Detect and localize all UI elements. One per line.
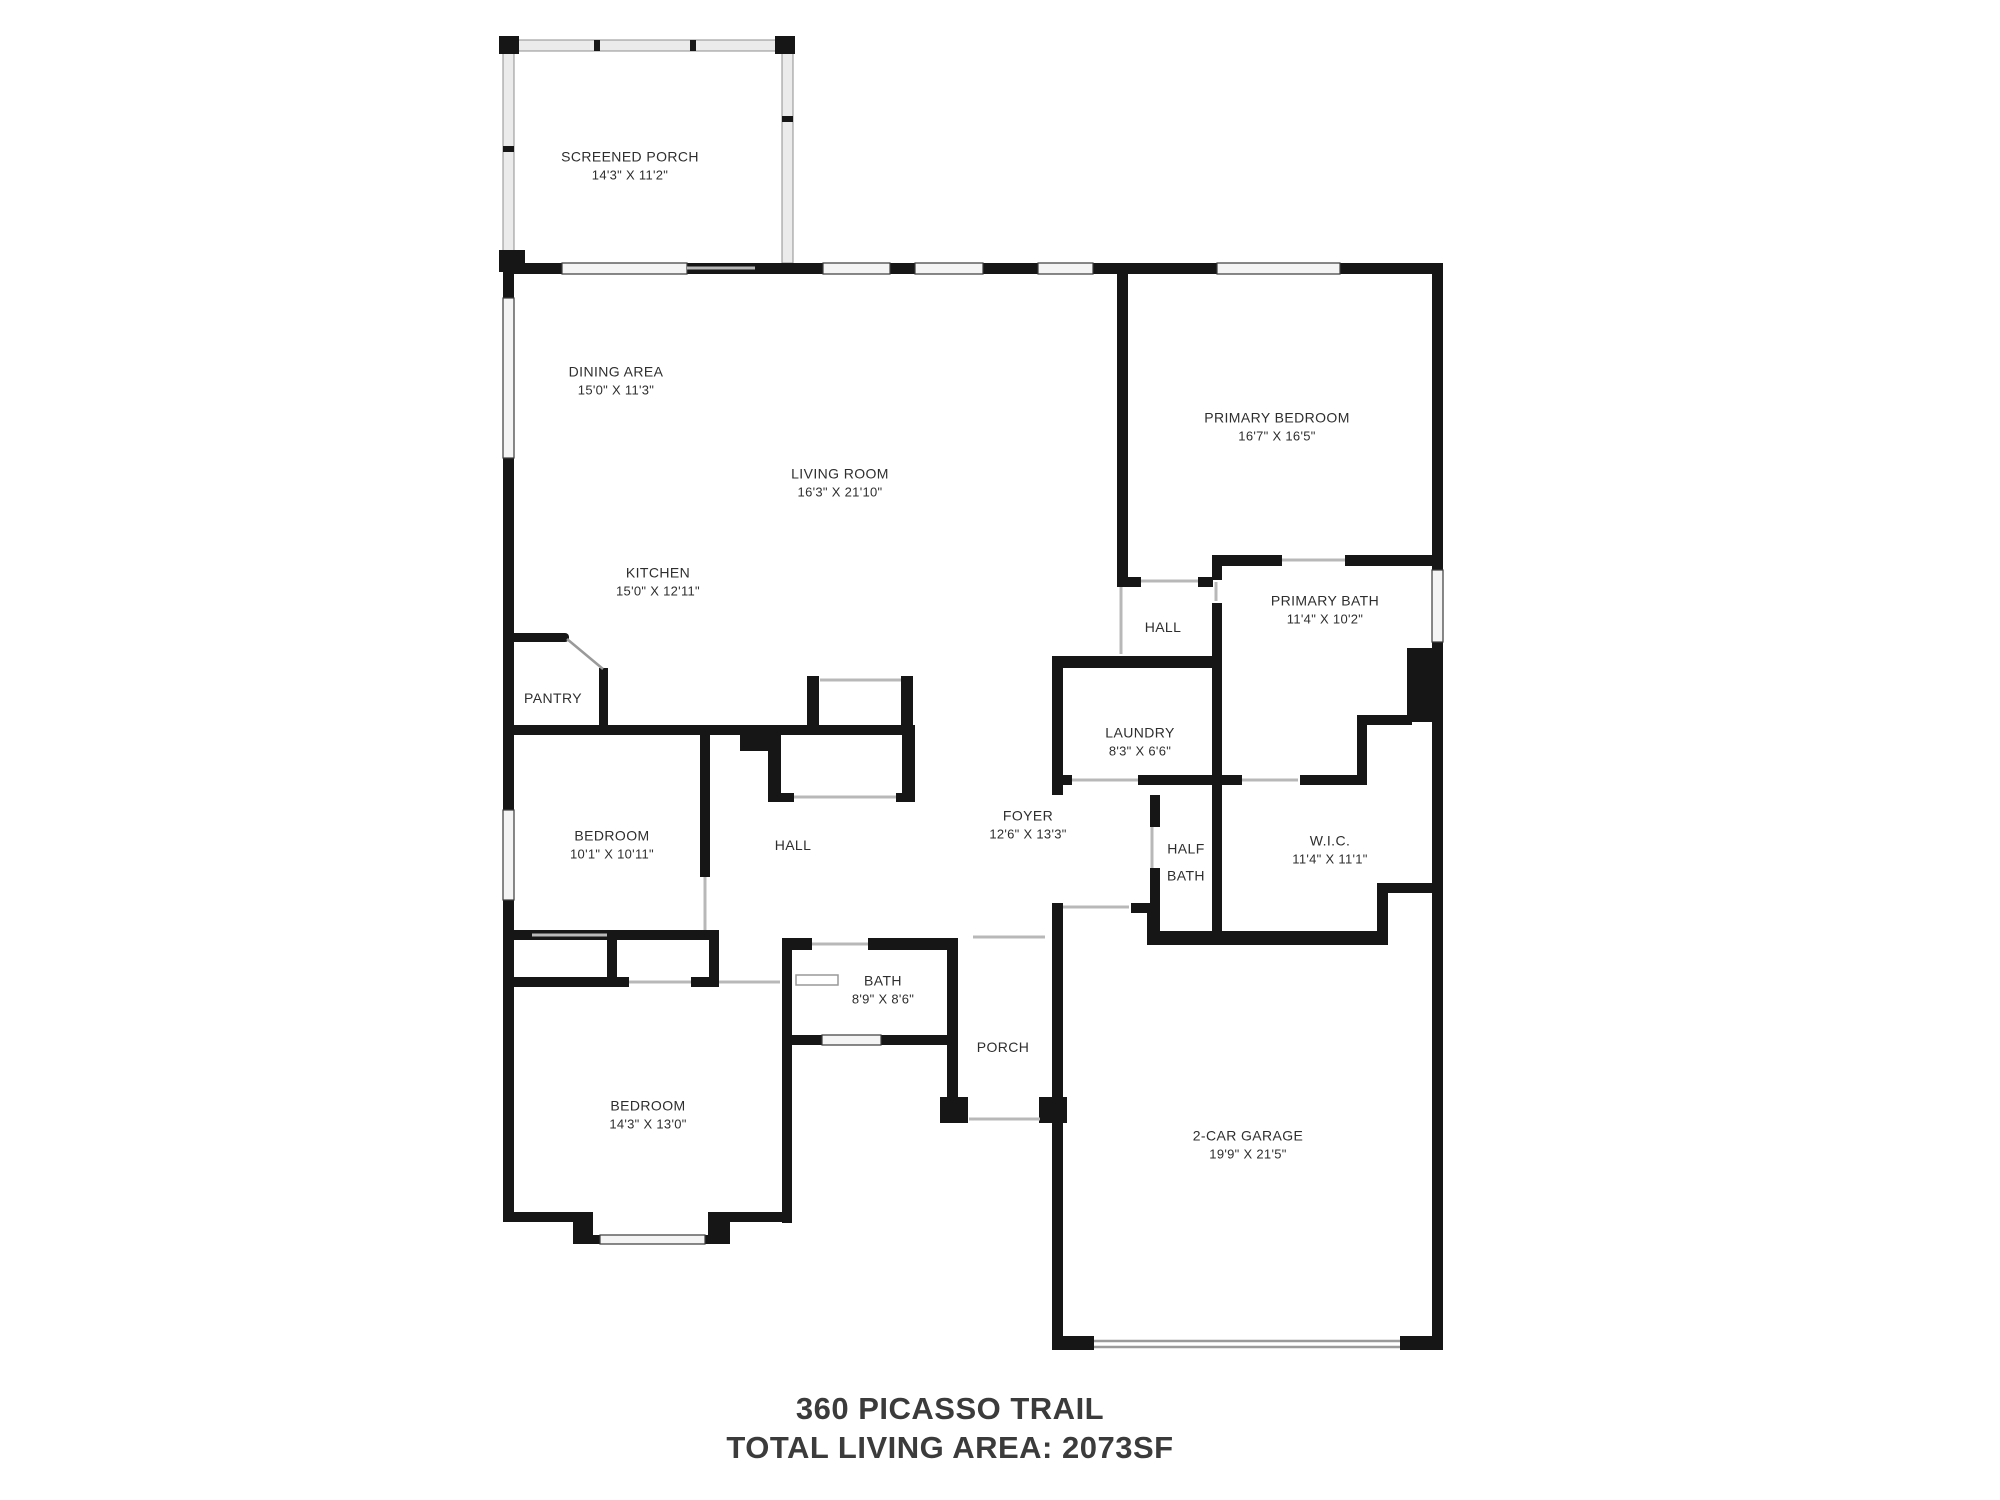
room-name: LAUNDRY bbox=[1105, 722, 1174, 742]
room-label-primary-bedroom: PRIMARY BEDROOM 16'7" X 16'5" bbox=[1204, 407, 1350, 446]
room-dims: 14'3" X 11'2" bbox=[561, 167, 699, 186]
floor-plan: SCREENED PORCH 14'3" X 11'2" DINING AREA… bbox=[0, 0, 2000, 1500]
room-dims: 19'9" X 21'5" bbox=[1193, 1146, 1304, 1165]
room-label-bedroom-2: BEDROOM 14'3" X 13'0" bbox=[609, 1095, 686, 1134]
room-label-laundry: LAUNDRY 8'3" X 6'6" bbox=[1105, 722, 1174, 761]
room-name: PRIMARY BEDROOM bbox=[1204, 407, 1350, 427]
room-label-screened-porch: SCREENED PORCH 14'3" X 11'2" bbox=[561, 146, 699, 185]
room-label-hall-lower: HALL bbox=[775, 835, 812, 855]
room-label-foyer: FOYER 12'6" X 13'3" bbox=[989, 805, 1066, 844]
room-dims: 8'3" X 6'6" bbox=[1105, 743, 1174, 762]
room-dims: 10'1" X 10'11" bbox=[570, 846, 654, 865]
room-name: BEDROOM bbox=[609, 1095, 686, 1115]
room-label-kitchen: KITCHEN 15'0" X 12'11" bbox=[616, 562, 700, 601]
room-name: HALL bbox=[1145, 617, 1182, 637]
room-dims: 15'0" X 12'11" bbox=[616, 583, 700, 602]
room-name: BEDROOM bbox=[570, 825, 654, 845]
total-area-line: TOTAL LIVING AREA: 2073SF bbox=[726, 1430, 1173, 1466]
room-name: SCREENED PORCH bbox=[561, 146, 699, 166]
room-dims: 16'3" X 21'10" bbox=[791, 484, 889, 503]
address-line: 360 PICASSO TRAIL bbox=[796, 1391, 1104, 1427]
room-label-dining-area: DINING AREA 15'0" X 11'3" bbox=[569, 361, 664, 400]
room-label-garage: 2-CAR GARAGE 19'9" X 21'5" bbox=[1193, 1125, 1304, 1164]
room-dims: 12'6" X 13'3" bbox=[989, 826, 1066, 845]
room-dims: 11'4" X 10'2" bbox=[1271, 611, 1379, 630]
room-dims: 11'4" X 11'1" bbox=[1292, 851, 1367, 870]
room-label-hall-upper: HALL bbox=[1145, 617, 1182, 637]
room-name: PORCH bbox=[977, 1037, 1030, 1057]
room-label-wic: W.I.C. 11'4" X 11'1" bbox=[1292, 830, 1367, 869]
room-label-half-bath: HALF BATH bbox=[1158, 835, 1214, 888]
room-label-bath: BATH 8'9" X 8'6" bbox=[852, 970, 914, 1009]
room-name: LIVING ROOM bbox=[791, 463, 889, 483]
room-name: FOYER bbox=[989, 805, 1066, 825]
bath-vanity bbox=[796, 975, 838, 985]
room-name: HALL bbox=[775, 835, 812, 855]
room-name: HALF BATH bbox=[1158, 835, 1214, 888]
room-dims: 14'3" X 13'0" bbox=[609, 1116, 686, 1135]
room-name: PANTRY bbox=[524, 688, 582, 708]
room-name: KITCHEN bbox=[616, 562, 700, 582]
garage-door bbox=[1094, 1341, 1400, 1347]
room-label-living-room: LIVING ROOM 16'3" X 21'10" bbox=[791, 463, 889, 502]
room-name: PRIMARY BATH bbox=[1271, 590, 1379, 610]
floor-plan-walls bbox=[0, 0, 2000, 1500]
room-name: DINING AREA bbox=[569, 361, 664, 381]
room-dims: 15'0" X 11'3" bbox=[569, 382, 664, 401]
room-name: W.I.C. bbox=[1292, 830, 1367, 850]
room-dims: 8'9" X 8'6" bbox=[852, 991, 914, 1010]
room-name: 2-CAR GARAGE bbox=[1193, 1125, 1304, 1145]
room-label-bedroom-1: BEDROOM 10'1" X 10'11" bbox=[570, 825, 654, 864]
room-label-porch: PORCH bbox=[977, 1037, 1030, 1057]
pantry-door bbox=[567, 639, 603, 669]
room-label-pantry: PANTRY bbox=[524, 688, 582, 708]
room-name: BATH bbox=[852, 970, 914, 990]
room-dims: 16'7" X 16'5" bbox=[1204, 428, 1350, 447]
room-label-primary-bath: PRIMARY BATH 11'4" X 10'2" bbox=[1271, 590, 1379, 629]
